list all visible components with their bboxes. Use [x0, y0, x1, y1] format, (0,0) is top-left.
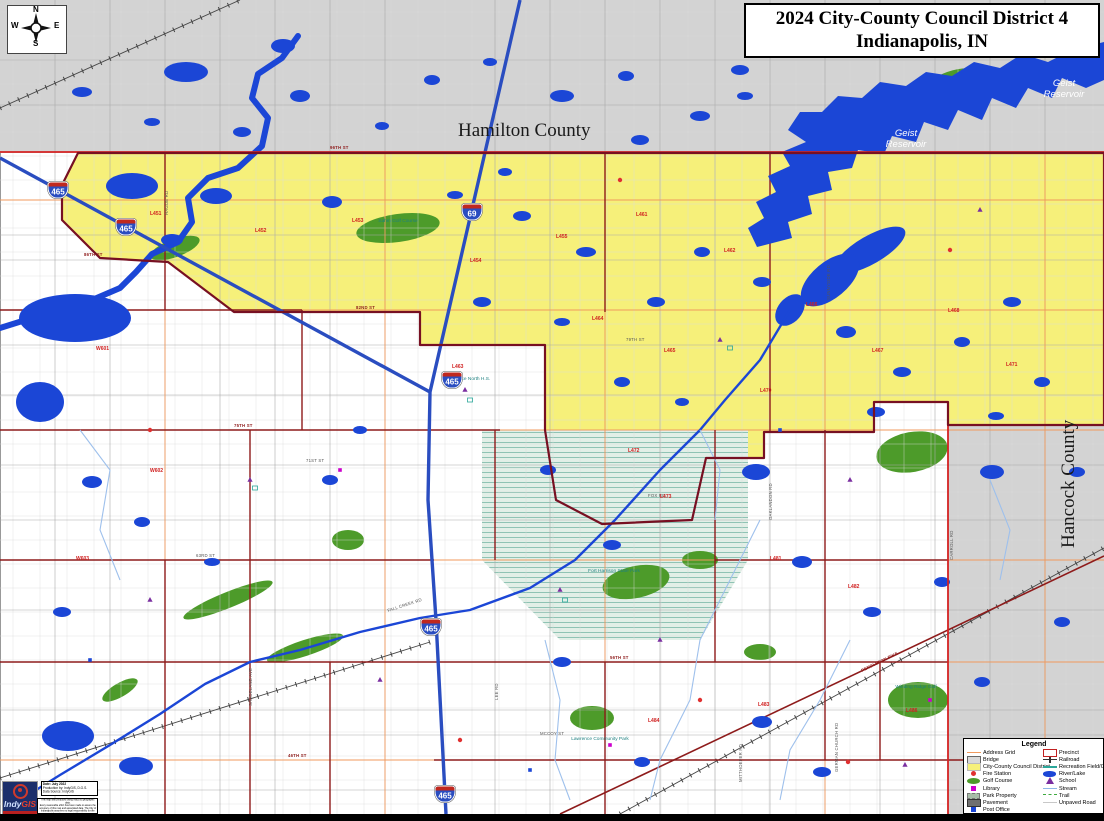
fire-station-icon	[698, 698, 702, 702]
pond	[954, 337, 970, 347]
precinct-label: L455	[556, 234, 568, 240]
pond	[867, 407, 885, 417]
facility-label: Fort Harrison State Park	[588, 568, 640, 574]
golf-course-area	[873, 426, 951, 478]
pond	[119, 757, 153, 775]
street-label: FALL CREEK RD	[387, 597, 423, 613]
interstate-69-shield-icon: 69	[462, 204, 483, 221]
pond	[634, 757, 650, 767]
pond	[204, 558, 220, 566]
golf-course-area	[744, 644, 776, 660]
pond	[1003, 297, 1021, 307]
pond	[161, 234, 183, 246]
street-label: 82ND ST	[356, 305, 375, 310]
pond	[553, 657, 571, 667]
geist-reservoir-label: Geist Reservoir	[866, 128, 946, 150]
recreation-field-icon	[468, 398, 473, 402]
pond	[106, 173, 158, 199]
precinct-label: L454	[470, 258, 482, 264]
geist-reservoir-label-2: Geist Reservoir	[1024, 78, 1104, 100]
street-label: 86TH ST	[84, 252, 103, 257]
pond	[42, 721, 94, 751]
facility-label: Sahm Golf Course	[378, 218, 418, 224]
post-office-icon	[88, 658, 92, 662]
pond	[322, 475, 338, 485]
street-label: 71ST ST	[306, 458, 324, 463]
compass-e: E	[54, 21, 59, 30]
street-label: 63RD ST	[196, 553, 215, 558]
pond	[988, 412, 1004, 420]
pond	[614, 377, 630, 387]
pond	[752, 716, 772, 728]
pond	[731, 65, 749, 75]
pond	[200, 188, 232, 204]
pond	[690, 111, 710, 121]
hancock-county-label: Hancock County	[1058, 420, 1080, 548]
school-icon	[377, 677, 382, 682]
pond	[1034, 377, 1050, 387]
pond	[1054, 617, 1070, 627]
pond	[863, 607, 881, 617]
pond	[550, 90, 574, 102]
precinct-label: L461	[636, 212, 648, 218]
library-icon	[608, 743, 612, 747]
indygis-logo: IndyGIS	[2, 781, 38, 814]
pond	[513, 211, 531, 221]
compass-w: W	[11, 21, 19, 30]
pond	[322, 196, 342, 208]
precinct-label: L484	[648, 718, 660, 724]
credits-box: Date: July 2022 Production by: IndyGIS, …	[41, 781, 98, 796]
legend-label: Precinct	[1059, 750, 1079, 756]
pond	[19, 294, 131, 342]
interstate-465-shield-icon: 465	[442, 372, 463, 389]
legend-label: Railroad	[1059, 757, 1079, 763]
map-canvas: 96TH ST86TH ST82ND ST79TH ST75TH ST71ST …	[0, 0, 1104, 821]
street-label: LEE RD	[494, 683, 499, 700]
map-title-line2: Indianapolis, IN	[746, 30, 1098, 53]
legend-label: Post Office	[983, 807, 1010, 813]
school-icon	[247, 477, 252, 482]
pond	[631, 135, 649, 145]
pond	[792, 556, 812, 568]
map-title-box: 2024 City-County Council District 4 Indi…	[744, 3, 1100, 58]
legend-label: School	[1059, 778, 1076, 784]
precinct-label: W603	[76, 556, 89, 562]
interstate-465-shield-icon: 465	[435, 786, 456, 803]
street-label: HAGUE RD	[164, 191, 169, 215]
pond	[424, 75, 440, 85]
unpaved-swatch-icon	[1043, 799, 1057, 807]
pond	[675, 398, 689, 406]
precinct-label: L473	[660, 494, 672, 500]
pond	[164, 62, 208, 82]
golf-course-area	[180, 575, 275, 626]
library-icon	[928, 698, 932, 702]
pond	[233, 127, 251, 137]
hamilton-county-label: Hamilton County	[458, 120, 590, 142]
pond	[375, 122, 389, 130]
precinct-label: L464	[592, 316, 604, 322]
pond	[647, 297, 665, 307]
pond	[618, 71, 634, 81]
pond	[144, 118, 160, 126]
precinct-label: L465	[664, 348, 676, 354]
precinct-label: L482	[848, 584, 860, 590]
bottom-border-bar	[0, 814, 1104, 821]
street-label: 96TH ST	[330, 145, 349, 150]
legend-item-unpaved: Unpaved Road	[1043, 799, 1102, 806]
pond	[16, 382, 64, 422]
pond	[53, 607, 71, 617]
legend-title: Legend	[967, 741, 1101, 749]
pond	[836, 326, 856, 338]
legend-label: Address Grid	[983, 750, 1015, 756]
indygis-logo-icon	[13, 784, 28, 799]
compass-n: N	[33, 5, 39, 14]
precinct-label: W602	[150, 468, 163, 474]
fire-station-icon	[948, 248, 952, 252]
pond	[134, 517, 150, 527]
legend-label: Golf Course	[983, 778, 1012, 784]
facility-label: Winding Ridge Golf	[895, 684, 937, 690]
street-label: 56TH ST	[610, 655, 629, 660]
logo-text-gis: GIS	[21, 799, 36, 809]
post-office-icon	[528, 768, 532, 772]
pond	[753, 277, 771, 287]
school-icon	[462, 387, 467, 392]
street-label: 79TH ST	[626, 337, 645, 342]
fire-station-icon	[846, 760, 850, 764]
pond	[576, 247, 596, 257]
pond	[447, 191, 463, 199]
legend-panel: Legend Address GridBridgeCity-County Cou…	[963, 738, 1104, 814]
pond	[540, 465, 556, 475]
interstate-465-shield-icon: 465	[48, 182, 69, 199]
golf-course-area	[99, 674, 141, 706]
legend-label: Trail	[1059, 793, 1070, 799]
legend-right-column: PrecinctRailroadRecreation Field/CourtRi…	[1043, 749, 1102, 814]
street-label: SUNNYSIDE RD	[826, 265, 831, 300]
pond	[72, 87, 92, 97]
street-label: SHADELAND AVE	[248, 668, 253, 706]
library-icon	[338, 468, 342, 472]
precinct-label: L452	[255, 228, 267, 234]
precinct-label: L453	[352, 218, 364, 224]
precinct-label: L463	[452, 364, 464, 370]
pond	[353, 426, 367, 434]
street-label: MCCOY ST	[540, 731, 564, 736]
post-swatch-icon	[967, 806, 981, 814]
legend-left-column: Address GridBridgeCity-County Council Di…	[967, 749, 1043, 814]
fort-harrison-park-area	[482, 430, 748, 640]
compass-s: S	[33, 39, 38, 48]
street-label: CARROLL RD	[949, 530, 954, 560]
facility-label: Lawrence Community Park	[571, 736, 629, 742]
pond	[980, 465, 1004, 479]
school-icon	[847, 477, 852, 482]
interstate-465-shield-icon: 465	[421, 619, 442, 636]
credits-source: Data Source: IndyGIS	[43, 790, 98, 794]
fire-station-icon	[458, 738, 462, 742]
legend-label: Fire Station	[983, 771, 1011, 777]
pond	[742, 464, 770, 480]
fire-station-icon	[618, 178, 622, 182]
legend-item-post: Post Office	[967, 807, 1043, 814]
pond	[737, 92, 753, 100]
pond	[974, 677, 990, 687]
precinct-label: L451	[150, 211, 162, 217]
precinct-label: L481	[770, 556, 782, 562]
fire-station-icon	[148, 428, 152, 432]
street-label: OAKLANDON RD	[768, 483, 773, 520]
legend-label: City-County Council District	[983, 764, 1050, 770]
legend-label: River/Lake	[1059, 771, 1085, 777]
precinct-label: L466	[806, 302, 818, 308]
precinct-label: W601	[96, 346, 109, 352]
legend-label: Library	[983, 786, 1000, 792]
legend-label: Bridge	[983, 757, 999, 763]
precinct-label: L462	[724, 248, 736, 254]
legend-label: Stream	[1059, 786, 1077, 792]
interstate-465-shield-icon: 465	[116, 219, 137, 236]
pond	[82, 476, 102, 488]
street-label: GERMAN CHURCH RD	[834, 723, 839, 772]
pond	[813, 767, 831, 777]
map-title-line1: 2024 City-County Council District 4	[746, 7, 1098, 30]
golf-course-area	[570, 706, 614, 730]
pond	[603, 540, 621, 550]
street-label: 75TH ST	[234, 423, 253, 428]
precinct-label: L471	[1006, 362, 1018, 368]
precinct-label: L486	[906, 708, 918, 714]
precinct-label: L483	[758, 702, 770, 708]
legend-label: Unpaved Road	[1059, 800, 1096, 806]
pond	[290, 90, 310, 102]
pond	[271, 39, 295, 53]
street-label: MITTHOEFER RD	[738, 744, 743, 782]
logo-text-indy: Indy	[4, 799, 21, 809]
pond	[498, 168, 512, 176]
compass-rose: N E S W	[7, 5, 67, 54]
street-label: 46TH ST	[288, 753, 307, 758]
post-office-icon	[778, 428, 782, 432]
pond	[694, 247, 710, 257]
legend-label: Park Property	[983, 793, 1017, 799]
disclaimer-box: This map was produced using IndyGIS geog…	[37, 798, 98, 814]
legend-label: Pavement	[983, 800, 1008, 806]
precinct-label: L468	[948, 308, 960, 314]
school-icon	[902, 762, 907, 767]
pond	[893, 367, 911, 377]
legend-label: Recreation Field/Court	[1059, 764, 1104, 770]
precinct-label: L472	[628, 448, 640, 454]
pond	[473, 297, 491, 307]
pond	[483, 58, 497, 66]
precinct-label: L470	[760, 388, 772, 394]
pond	[554, 318, 570, 326]
recreation-field-icon	[253, 486, 258, 490]
precinct-label: L467	[872, 348, 884, 354]
